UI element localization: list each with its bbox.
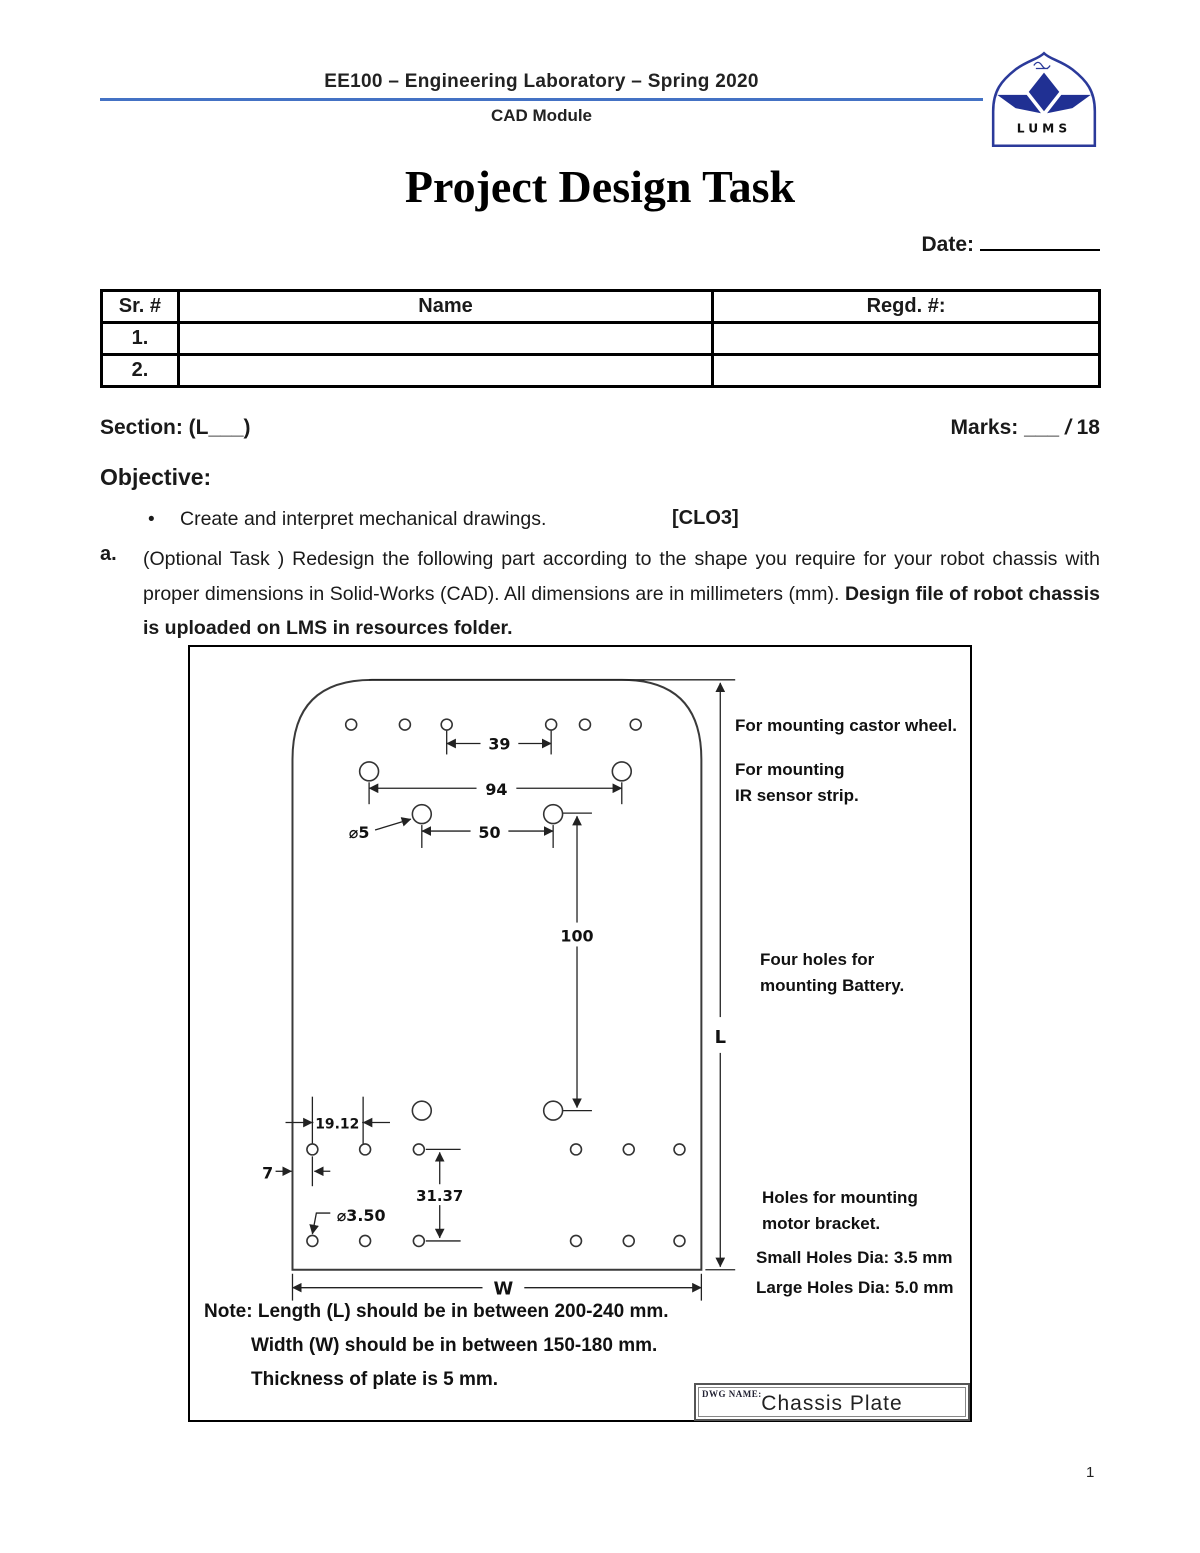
dim-100: 100 xyxy=(560,926,593,945)
task-paragraph: a. (Optional Task ) Redesign the followi… xyxy=(100,542,1100,646)
team-table: Sr. # Name Regd. #: 1. 2. xyxy=(100,289,1101,388)
dim-39: 39 xyxy=(488,734,510,753)
bullet-icon: • xyxy=(148,509,155,531)
chassis-drawing-figure: 39 94 50 ⌀5 100 19.12 7 31.37 ⌀3.50 L W … xyxy=(188,645,972,1422)
annotation-battery-line2: mounting Battery. xyxy=(760,973,904,999)
annotation-battery-line1: Four holes for xyxy=(760,947,904,973)
annotation-castor: For mounting castor wheel. xyxy=(735,713,957,739)
note-line2: Width (W) should be in between 150-180 m… xyxy=(251,1329,669,1363)
note-line1: Note: Length (L) should be in between 20… xyxy=(204,1295,669,1329)
section-marks-row: Section: (L___) Marks: ___ / 18 xyxy=(100,416,1100,440)
course-header: EE100 – Engineering Laboratory – Spring … xyxy=(100,71,983,93)
dim-31-37: 31.37 xyxy=(416,1187,463,1205)
clo-tag: [CLO3] xyxy=(672,507,739,530)
col-header-regd: Regd. #: xyxy=(713,291,1100,323)
annotation-motor-line2: motor bracket. xyxy=(762,1211,918,1237)
row1-sr: 1. xyxy=(102,323,179,355)
task-letter: a. xyxy=(100,543,117,566)
lums-logo: LUMS xyxy=(983,50,1105,148)
annotation-ir-line1: For mounting xyxy=(735,757,859,783)
module-subheader: CAD Module xyxy=(100,106,983,126)
objective-heading: Objective: xyxy=(100,464,211,491)
row2-sr: 2. xyxy=(102,355,179,387)
annotation-ir-line2: IR sensor strip. xyxy=(735,783,859,809)
col-header-name: Name xyxy=(178,291,712,323)
page-title: Project Design Task xyxy=(100,160,1100,213)
dim-94: 94 xyxy=(485,780,507,799)
marks-label: Marks: ___ / 18 xyxy=(951,416,1100,440)
logo-text: LUMS xyxy=(1017,122,1071,136)
row2-name xyxy=(178,355,712,387)
drawing-title-block: DWG NAME: Chassis Plate xyxy=(694,1383,970,1421)
dim-L: L xyxy=(715,1027,726,1048)
task-text: (Optional Task ) Redesign the following … xyxy=(143,542,1100,646)
header-divider xyxy=(100,98,983,101)
annotation-large-holes: Large Holes Dia: 5.0 mm xyxy=(756,1273,953,1303)
annotation-battery: Four holes for mounting Battery. xyxy=(760,947,904,999)
date-row: Date: xyxy=(700,230,1100,257)
row1-name xyxy=(178,323,712,355)
title-block-inner: DWG NAME: Chassis Plate xyxy=(698,1387,966,1417)
note-line3: Thickness of plate is 5 mm. xyxy=(251,1363,669,1397)
dim-19-12: 19.12 xyxy=(315,1117,359,1133)
page-number: 1 xyxy=(1086,1464,1094,1481)
annotation-hole-sizes: Small Holes Dia: 3.5 mm Large Holes Dia:… xyxy=(756,1243,953,1303)
annotation-motor-bracket: Holes for mounting motor bracket. xyxy=(762,1185,918,1237)
table-row: 1. xyxy=(102,323,1100,355)
dim-dia5: ⌀5 xyxy=(349,823,370,842)
date-blank-line xyxy=(980,230,1100,251)
annotation-small-holes: Small Holes Dia: 3.5 mm xyxy=(756,1243,953,1273)
table-header-row: Sr. # Name Regd. #: xyxy=(102,291,1100,323)
annotation-ir-sensor: For mounting IR sensor strip. xyxy=(735,757,859,809)
dim-7: 7 xyxy=(262,1163,273,1182)
dim-50: 50 xyxy=(478,823,500,842)
annotation-motor-line1: Holes for mounting xyxy=(762,1185,918,1211)
row2-regd xyxy=(713,355,1100,387)
plate-outline xyxy=(292,680,701,1270)
note-label: Note: xyxy=(204,1301,253,1322)
section-label: Section: (L___) xyxy=(100,416,251,440)
table-row: 2. xyxy=(102,355,1100,387)
dwg-name-value: Chassis Plate xyxy=(699,1392,965,1416)
objective-bullet-text: Create and interpret mechanical drawings… xyxy=(180,508,546,531)
date-label: Date: xyxy=(921,233,974,256)
row1-regd xyxy=(713,323,1100,355)
col-header-sr: Sr. # xyxy=(102,291,179,323)
dim-dia3-50: ⌀3.50 xyxy=(337,1206,386,1225)
figure-note: Note: Length (L) should be in between 20… xyxy=(204,1295,669,1397)
